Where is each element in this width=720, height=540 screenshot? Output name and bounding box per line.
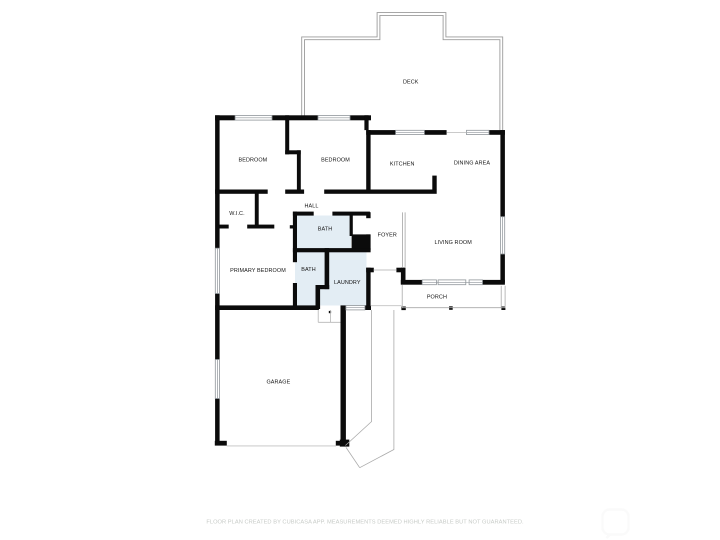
svg-text:BEDROOM: BEDROOM <box>321 157 350 163</box>
svg-text:KITCHEN: KITCHEN <box>390 161 415 167</box>
svg-text:FLOOR PLAN CREATED BY CUBICASA: FLOOR PLAN CREATED BY CUBICASA APP. MEAS… <box>206 519 524 525</box>
svg-text:DINING AREA: DINING AREA <box>454 161 490 167</box>
svg-text:PORCH: PORCH <box>427 294 447 300</box>
svg-text:DECK: DECK <box>403 79 419 85</box>
svg-text:HALL: HALL <box>304 203 318 209</box>
svg-text:FOYER: FOYER <box>378 232 397 238</box>
svg-text:BATH: BATH <box>318 226 333 232</box>
svg-text:BATH: BATH <box>301 267 316 273</box>
svg-text:BEDROOM: BEDROOM <box>239 157 268 163</box>
svg-text:LIVING ROOM: LIVING ROOM <box>435 240 473 246</box>
svg-text:GARAGE: GARAGE <box>266 380 290 386</box>
svg-text:LAUNDRY: LAUNDRY <box>334 280 361 286</box>
svg-text:PRIMARY BEDROOM: PRIMARY BEDROOM <box>230 268 286 274</box>
svg-text:W.I.C.: W.I.C. <box>229 211 245 217</box>
